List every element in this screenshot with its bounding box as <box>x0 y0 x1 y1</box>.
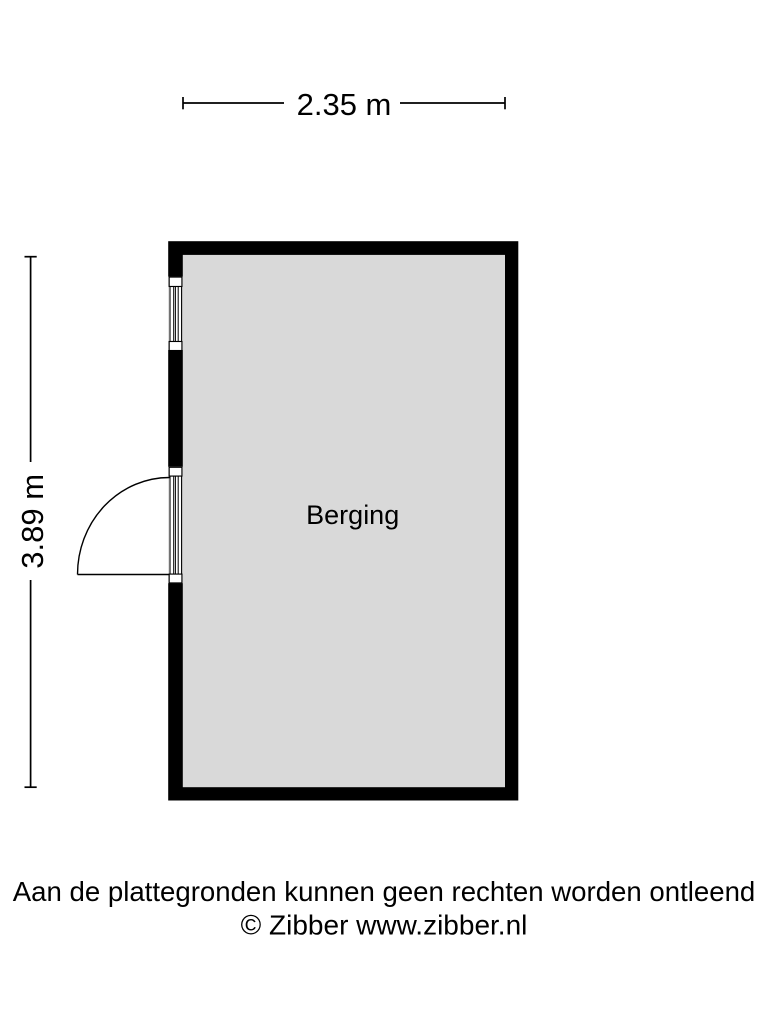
svg-text:Berging: Berging <box>306 500 399 530</box>
svg-text:© Zibber www.zibber.nl: © Zibber www.zibber.nl <box>241 910 528 941</box>
svg-text:3.89 m: 3.89 m <box>15 474 50 569</box>
svg-text:2.35 m: 2.35 m <box>297 87 392 122</box>
svg-text:Aan de plattegronden kunnen ge: Aan de plattegronden kunnen geen rechten… <box>13 876 756 907</box>
